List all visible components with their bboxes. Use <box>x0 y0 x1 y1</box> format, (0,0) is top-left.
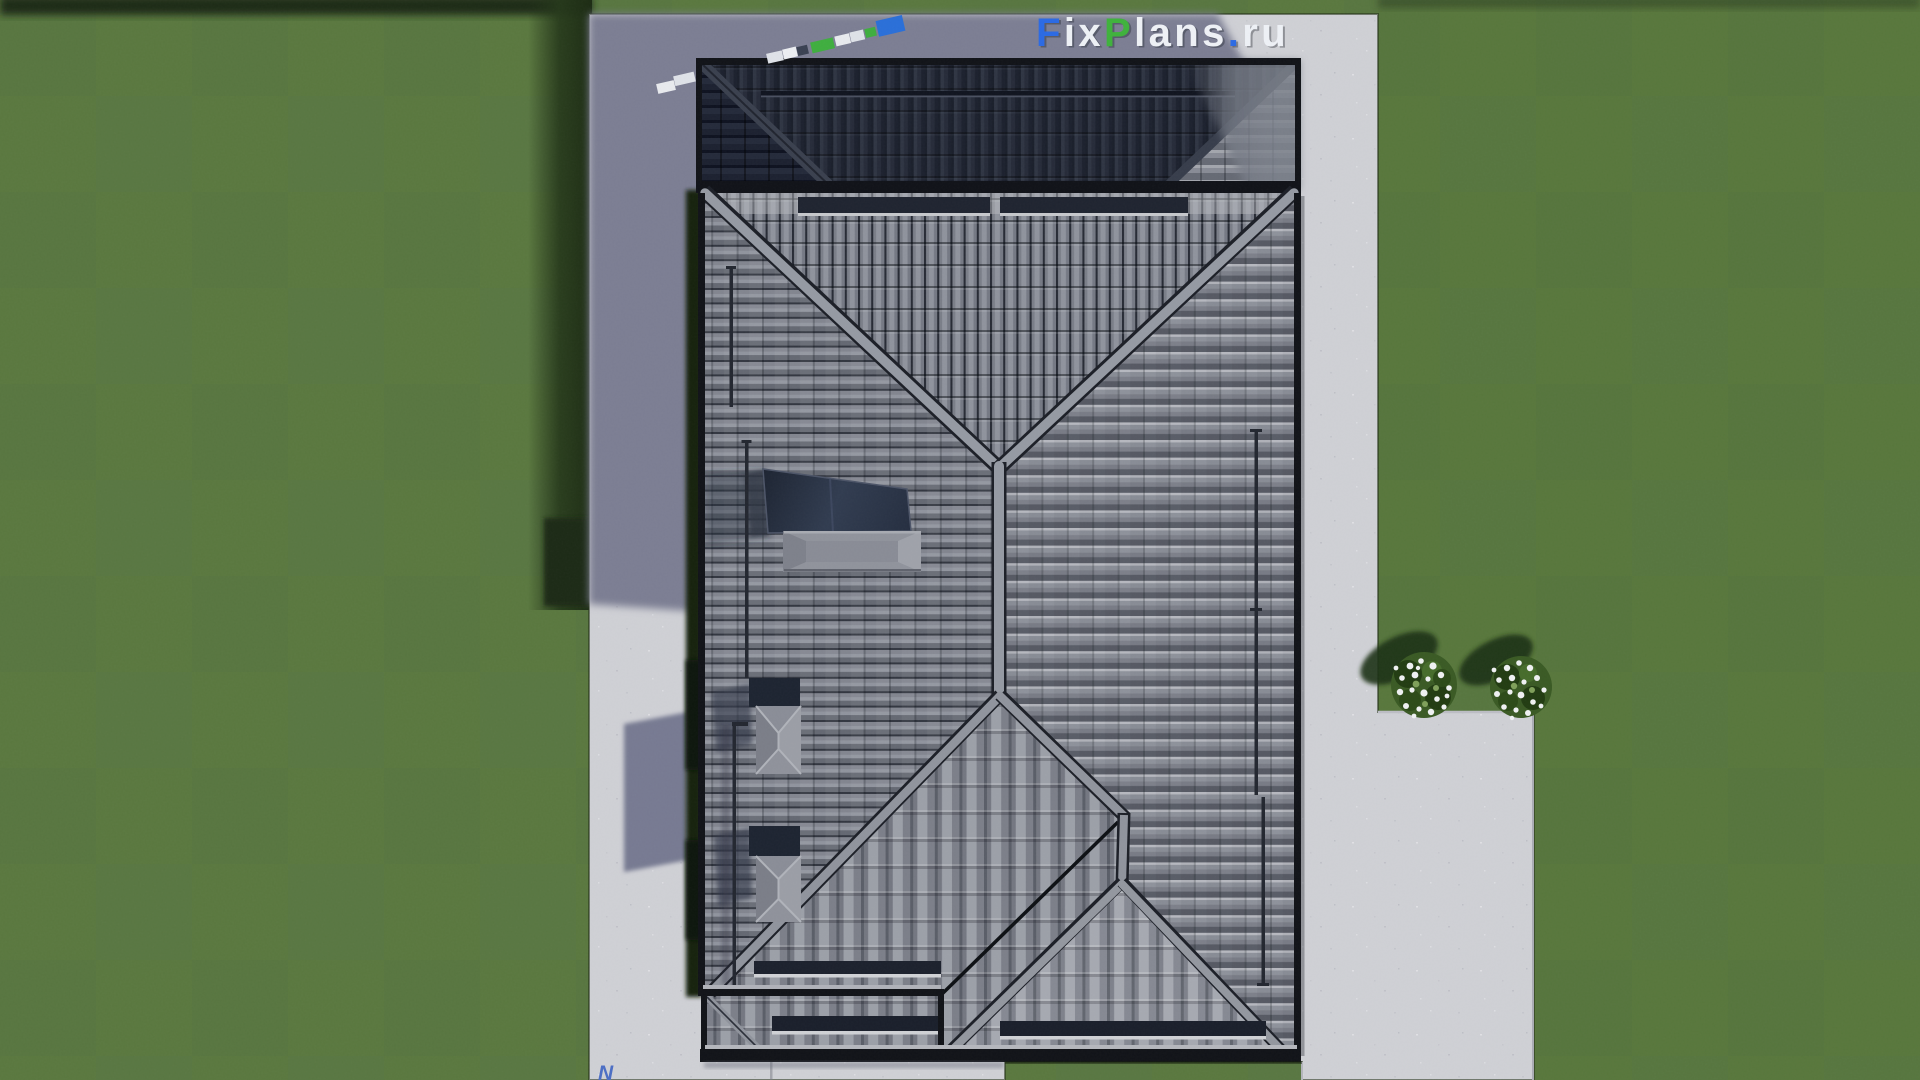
svg-text:N: N <box>598 1062 614 1080</box>
